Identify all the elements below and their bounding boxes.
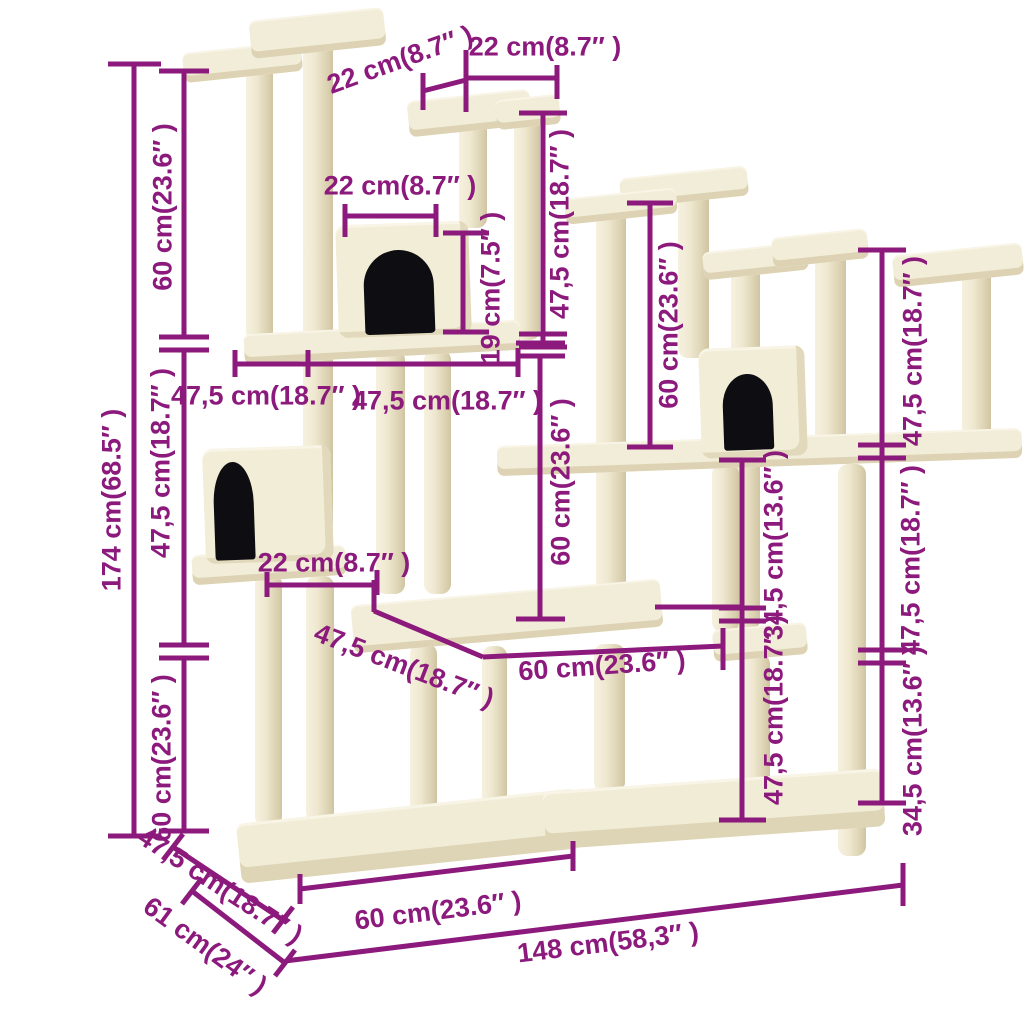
dim-label-total-height-174: 174 cm(68.5″ ) [97, 409, 128, 592]
dim-line-upper-house-22 [345, 204, 436, 237]
dim-label-inner-bottom-47-5: 47,5 cm(18.7″ ) [759, 615, 790, 805]
dim-label-right-top-60: 60 cm(23.6″ ) [654, 241, 685, 409]
dim-label-center-60: 60 cm(23.6″ ) [546, 398, 577, 566]
dim-label-mid-47-5-b: 47,5 cm(18.7″ ) [352, 386, 542, 417]
dim-label-upper-house-22: 22 cm(8.7″ ) [324, 171, 477, 202]
dim-label-center-top-47-5: 47,5 cm(18.7″ ) [545, 129, 576, 319]
dim-label-left-bottom-60: 60 cm(23.6″ ) [147, 674, 178, 842]
dim-label-left-top-60: 60 cm(23.6″ ) [148, 123, 179, 291]
dim-label-lower-house-22: 22 cm(8.7″ ) [258, 548, 411, 579]
dim-label-right-mid-47-5: 47,5 cm(18.7″ ) [896, 465, 927, 655]
dim-label-right-top-47-5: 47,5 cm(18.7″ ) [898, 256, 929, 446]
cat-tree-dimension-diagram: 22 cm(8.7″ ) 22 cm(8.7″ ) 22 cm(8.7″ ) 1… [0, 0, 1024, 1024]
dim-label-upper-house-19: 19 cm(7.5″ ) [476, 212, 507, 365]
dim-label-top-right-22: 22 cm(8.7″ ) [469, 32, 622, 63]
dim-label-right-bottom-34-5: 34,5 cm(13.6″ ) [898, 646, 929, 836]
dim-label-mid-47-5-a: 47,5 cm(18.7″ ) [171, 381, 361, 412]
dim-label-inner-top-34-5: 34,5 cm(13.6″ ) [759, 450, 790, 640]
